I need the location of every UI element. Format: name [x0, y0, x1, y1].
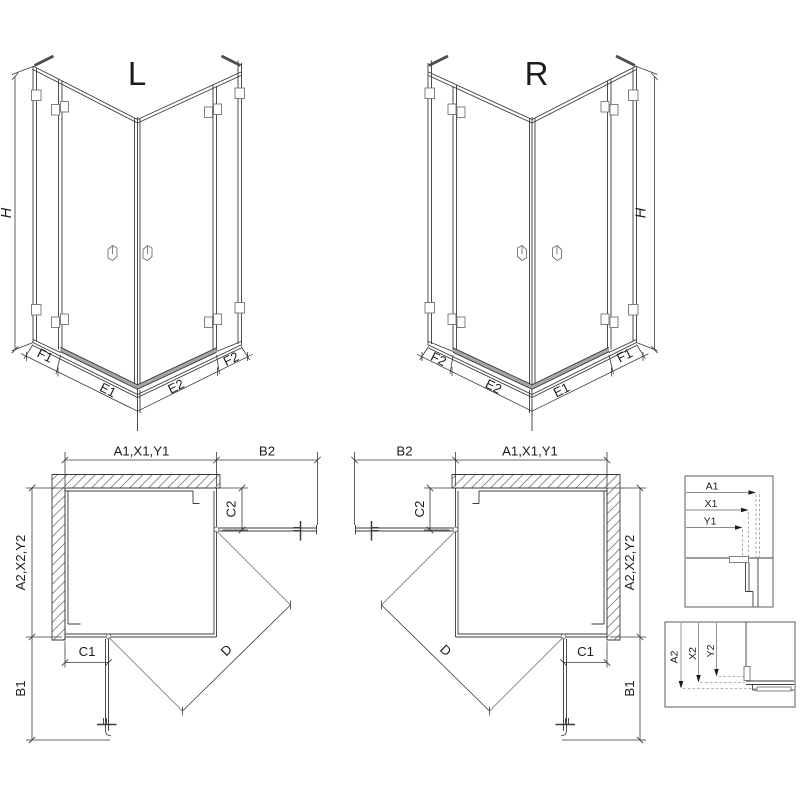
plan-right-fixed-top-label: C2	[412, 501, 427, 518]
detail-top-y1-label: Y1	[704, 516, 717, 528]
detail-box-horizontal	[685, 476, 773, 607]
plan-left-fixed-top-label: C2	[224, 501, 239, 518]
detail-bottom-x2-label: X2	[687, 647, 699, 660]
plan-left-door-top-label: B2	[259, 444, 275, 459]
plan-right-door-side-label: B1	[622, 680, 637, 696]
detail-top-x1-label: X1	[705, 498, 718, 510]
plan-right-door-top-label: B2	[396, 444, 412, 459]
iso-right-title: R	[525, 55, 549, 92]
plan-left-door-side-label: B1	[13, 680, 28, 696]
iso-left-title: L	[128, 55, 146, 92]
plan-right-width-label: A1,X1,Y1	[502, 444, 558, 459]
technical-drawing-page: L R H H F1 E1 E2 F2 F2 E2 E1 F1 A1,X1,Y1…	[0, 0, 800, 800]
detail-box-vertical	[665, 622, 795, 707]
drawing-canvas: L R H H F1 E1 E2 F2 F2 E2 E1 F1 A1,X1,Y1…	[0, 0, 800, 800]
detail-bottom-y2-label: Y2	[705, 644, 717, 657]
plan-left-width-label: A1,X1,Y1	[114, 444, 170, 459]
detail-top-a1-label: A1	[706, 481, 719, 493]
plan-left-depth-label: A2,X2,Y2	[13, 535, 28, 591]
detail-bottom-a2-label: A2	[669, 650, 681, 663]
iso-right-height-label: H	[634, 207, 650, 218]
plan-right-depth-label: A2,X2,Y2	[622, 535, 637, 591]
plan-right-fixed-side-label: C1	[577, 644, 594, 659]
iso-left-height-label: H	[0, 207, 15, 218]
plan-left-fixed-side-label: C1	[79, 644, 96, 659]
